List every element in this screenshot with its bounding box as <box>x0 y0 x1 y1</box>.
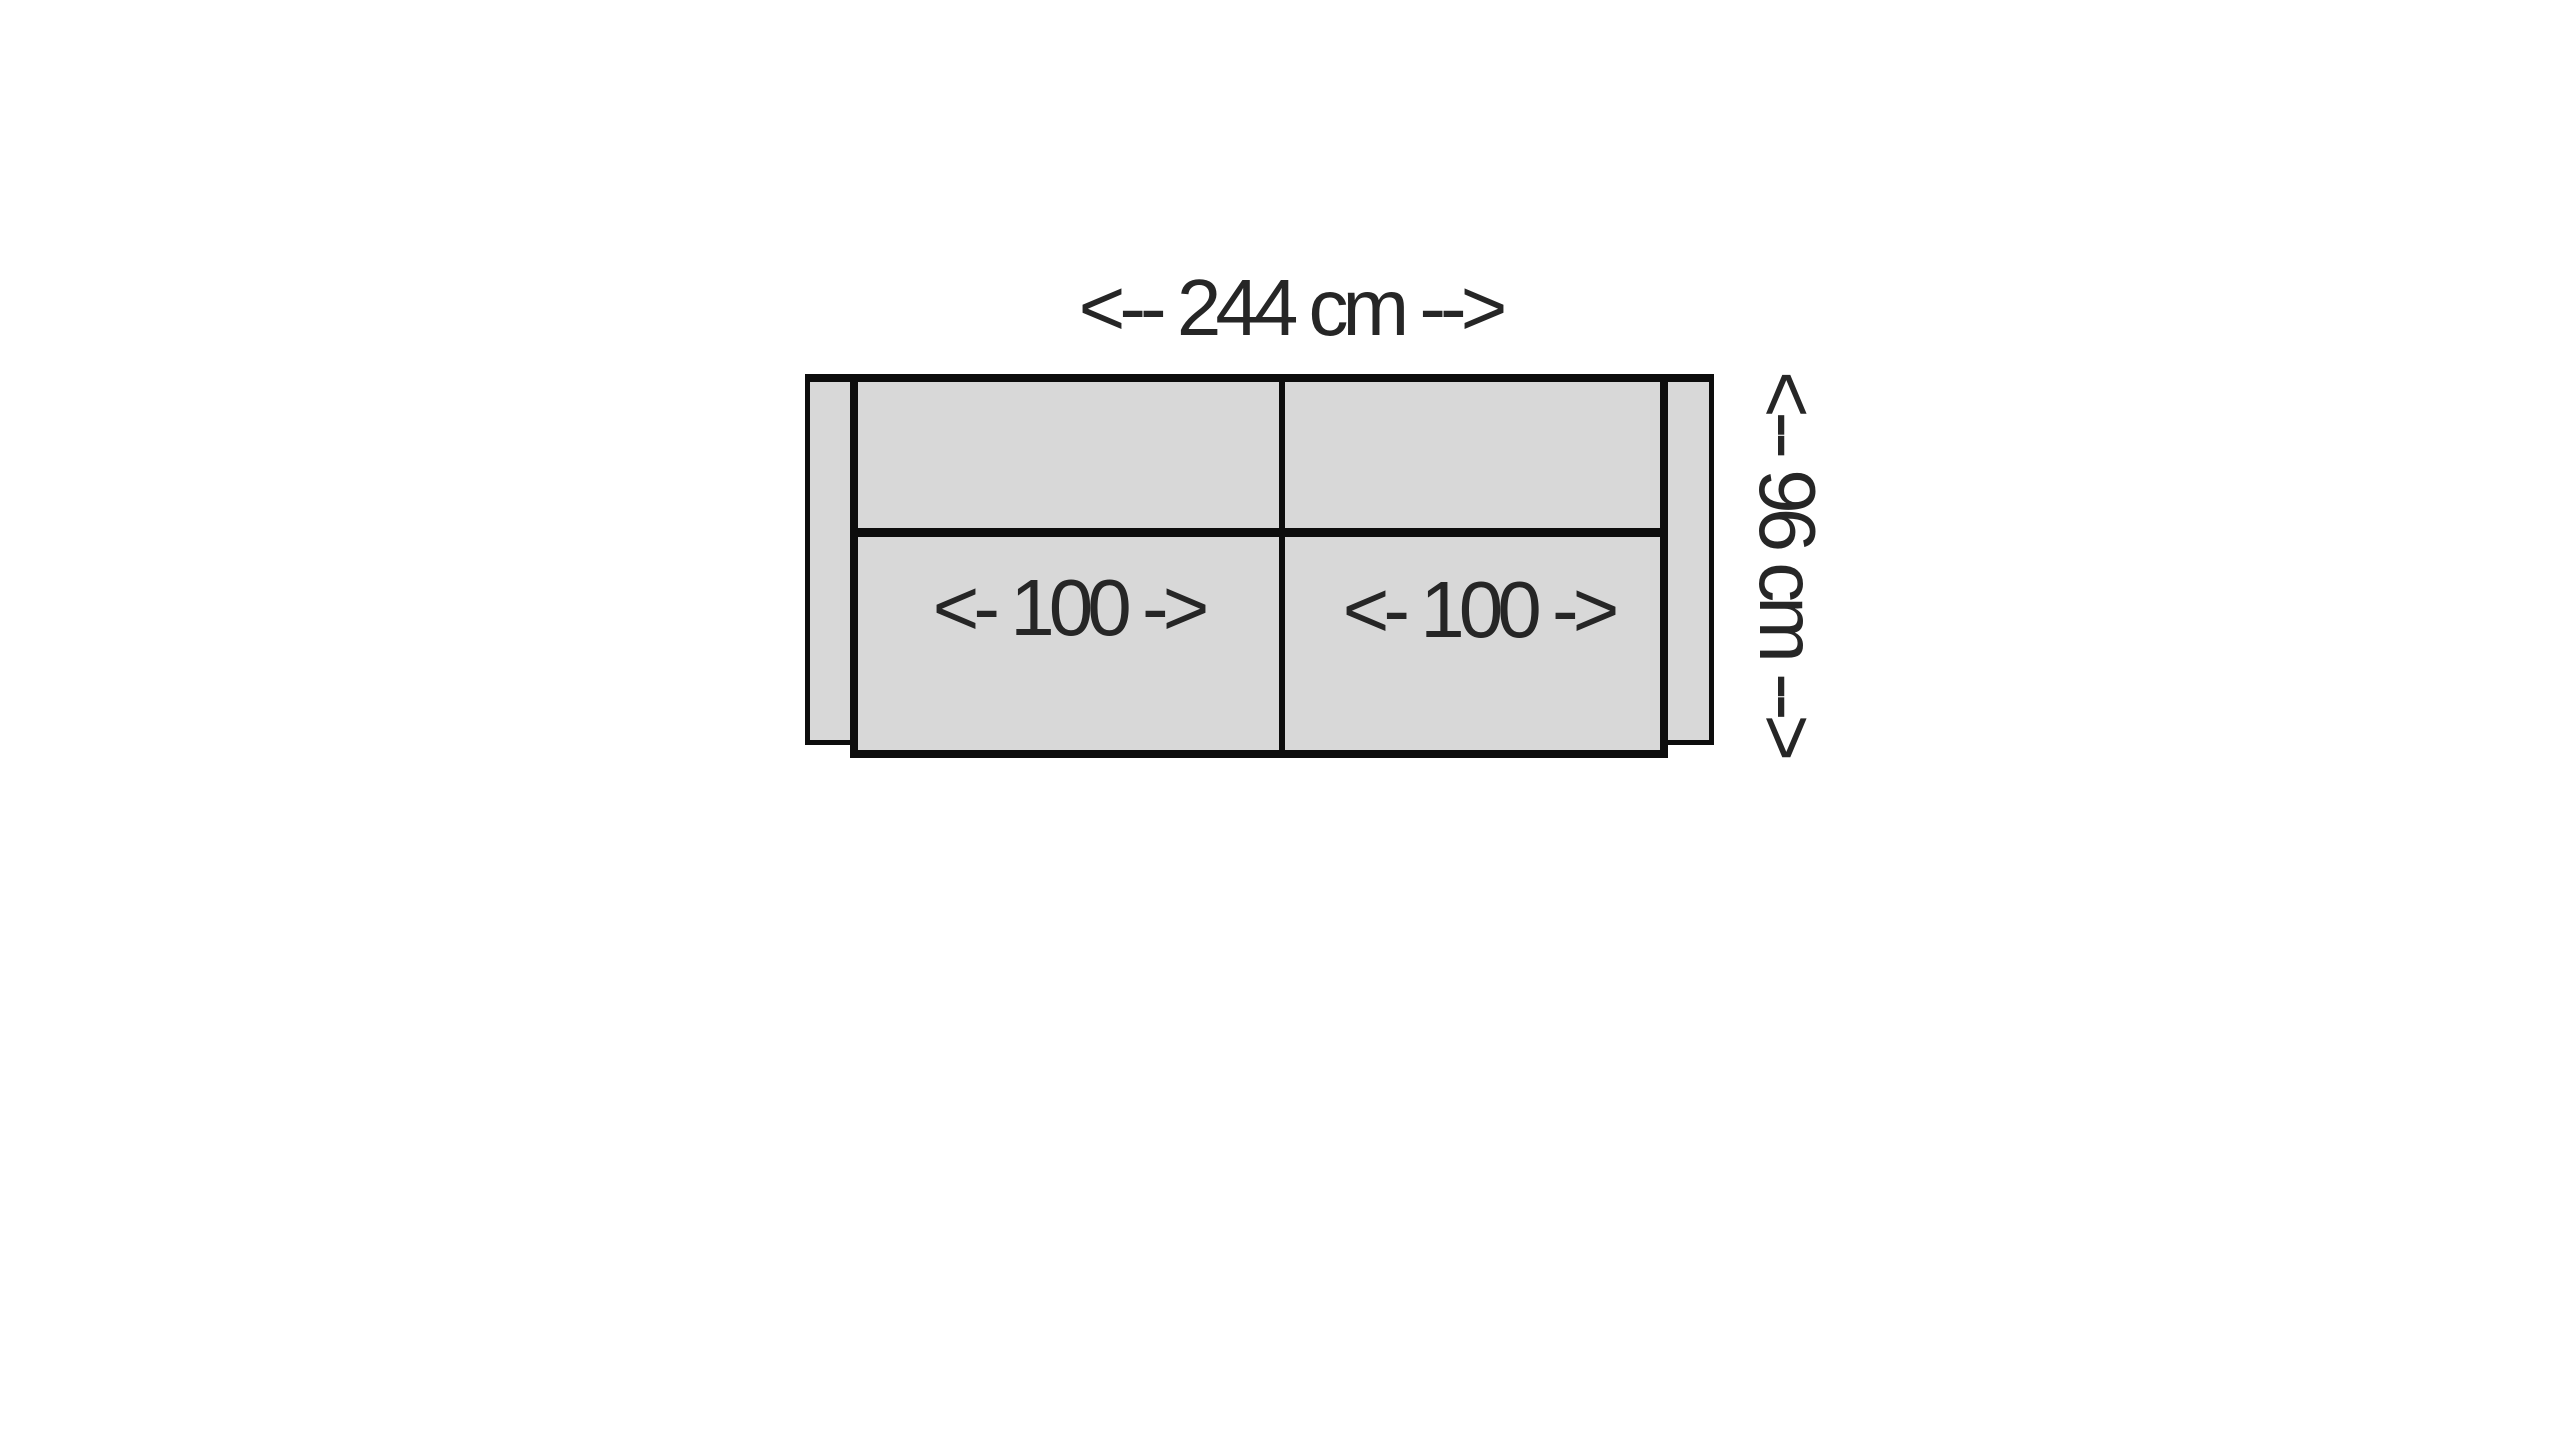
right-seat-width-label: <- 100 -> <box>1343 564 1614 656</box>
overall-width-dimension-label: <-- 244 cm --> <box>1079 262 1502 354</box>
seat-section-divider-line <box>1279 382 1285 750</box>
sofa-dimension-diagram: <-- 244 cm --> <- 100 -> <- 100 -> <-- 9… <box>0 0 2560 1440</box>
overall-depth-dimension-label: <-- 96 cm --> <box>1741 371 1833 755</box>
backrest-seat-divider-line <box>858 528 1660 537</box>
left-seat-width-label: <- 100 -> <box>933 562 1204 654</box>
